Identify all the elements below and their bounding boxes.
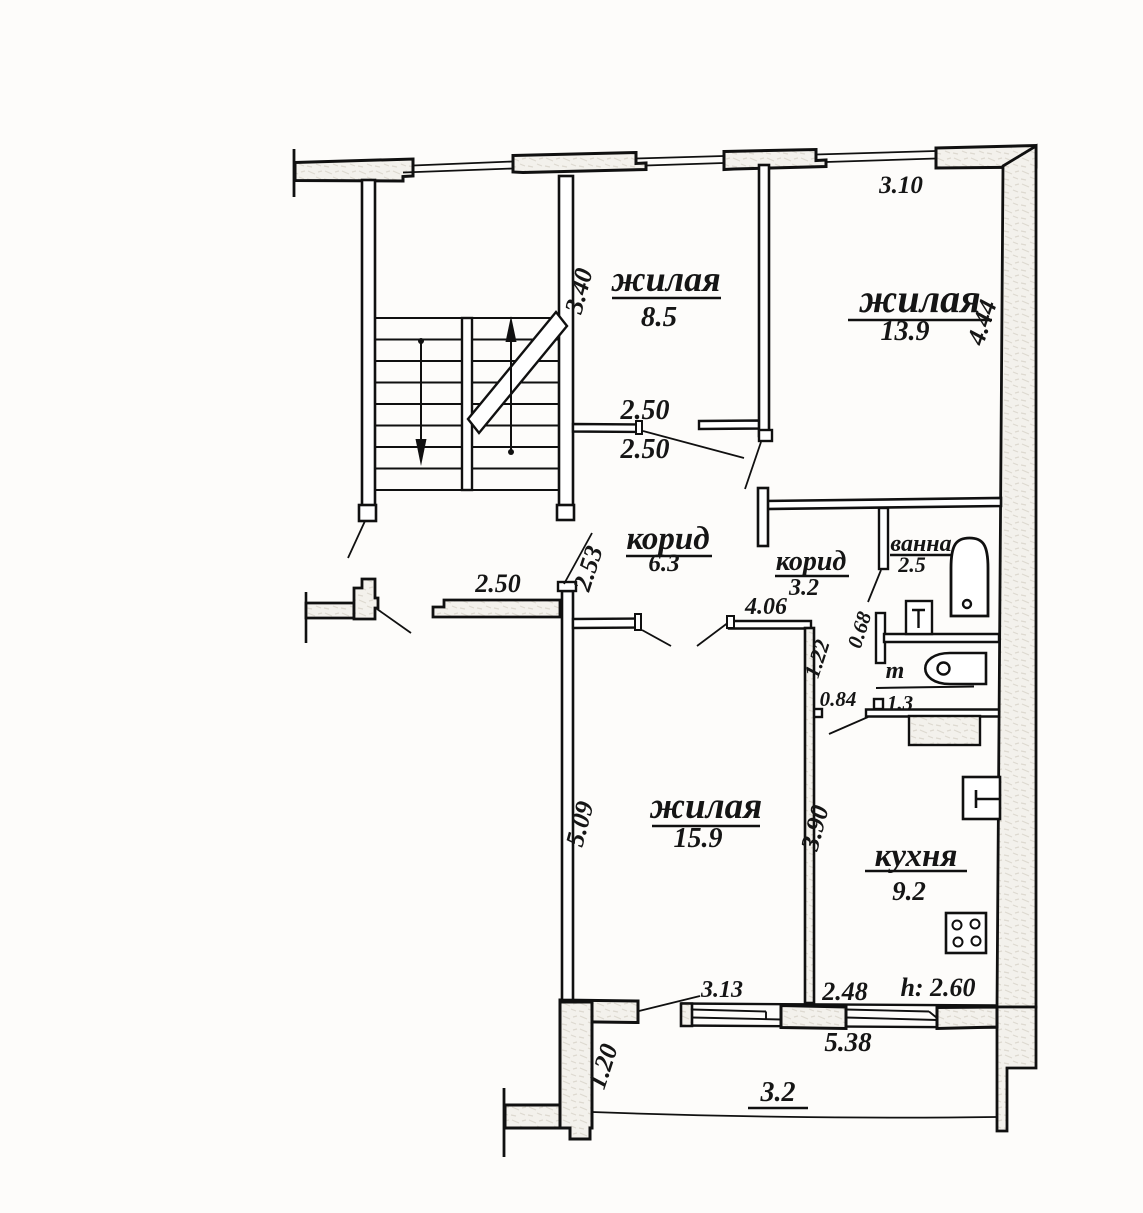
svg-text:3.2: 3.2 (788, 575, 819, 601)
svg-text:9.2: 9.2 (892, 876, 926, 906)
svg-text:корид: корид (776, 546, 847, 577)
svg-text:13.9: 13.9 (881, 316, 930, 347)
svg-text:2.50: 2.50 (620, 395, 670, 426)
svg-text:т: т (886, 658, 905, 684)
svg-text:15.9: 15.9 (674, 823, 723, 854)
svg-text:2.48: 2.48 (821, 977, 868, 1006)
svg-text:жилая: жилая (858, 276, 980, 321)
svg-text:0.84: 0.84 (820, 687, 857, 711)
svg-text:6.3: 6.3 (648, 550, 679, 577)
svg-text:4.06: 4.06 (744, 594, 787, 620)
svg-text:3.13: 3.13 (700, 977, 743, 1003)
svg-text:8.5: 8.5 (641, 301, 677, 333)
svg-text:h: 2.60: h: 2.60 (900, 973, 975, 1002)
svg-text:3.2: 3.2 (760, 1077, 796, 1108)
svg-text:жилая: жилая (610, 259, 720, 299)
svg-text:2.5: 2.5 (897, 552, 926, 577)
svg-text:2.50: 2.50 (620, 434, 670, 465)
svg-text:1.3: 1.3 (887, 691, 913, 715)
svg-text:2.50: 2.50 (474, 569, 521, 598)
svg-text:жилая: жилая (649, 786, 762, 827)
svg-text:3.10: 3.10 (878, 172, 923, 199)
svg-text:кухня: кухня (875, 838, 958, 874)
svg-text:5.38: 5.38 (824, 1027, 872, 1057)
